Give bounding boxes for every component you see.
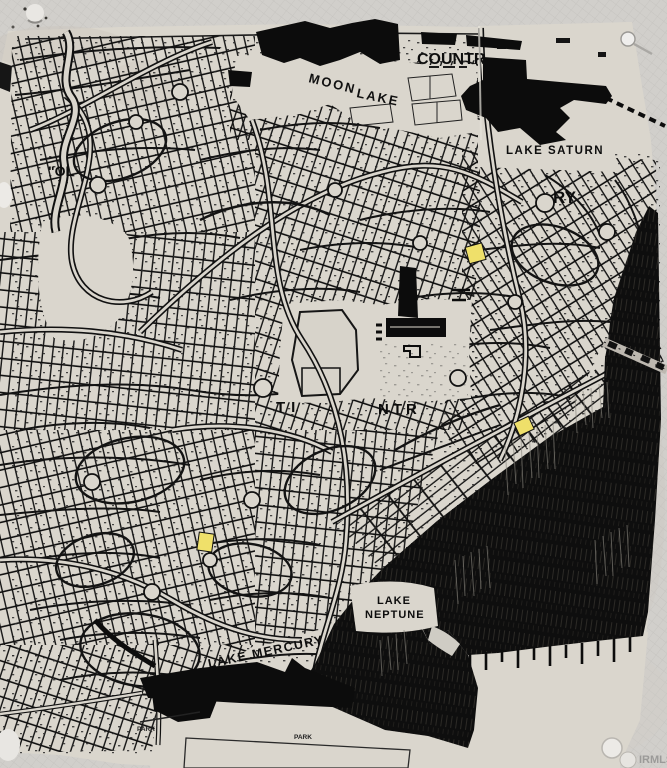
svg-text:NEPTUNE: NEPTUNE xyxy=(365,609,425,621)
svg-text:LAKE SATURN: LAKE SATURN xyxy=(506,145,604,157)
svg-text:RY: RY xyxy=(553,188,577,207)
svg-text:LAKE: LAKE xyxy=(377,595,411,607)
svg-text:COUNTR: COUNTR xyxy=(417,51,486,68)
svg-text:"OL: "OL xyxy=(48,163,75,179)
svg-text:IRMLS: IRMLS xyxy=(639,754,667,766)
svg-text:PARK: PARK xyxy=(294,734,312,741)
svg-text:NTR: NTR xyxy=(378,401,421,418)
svg-text:TI: TI xyxy=(276,399,301,416)
svg-text:PARK: PARK xyxy=(137,726,155,733)
